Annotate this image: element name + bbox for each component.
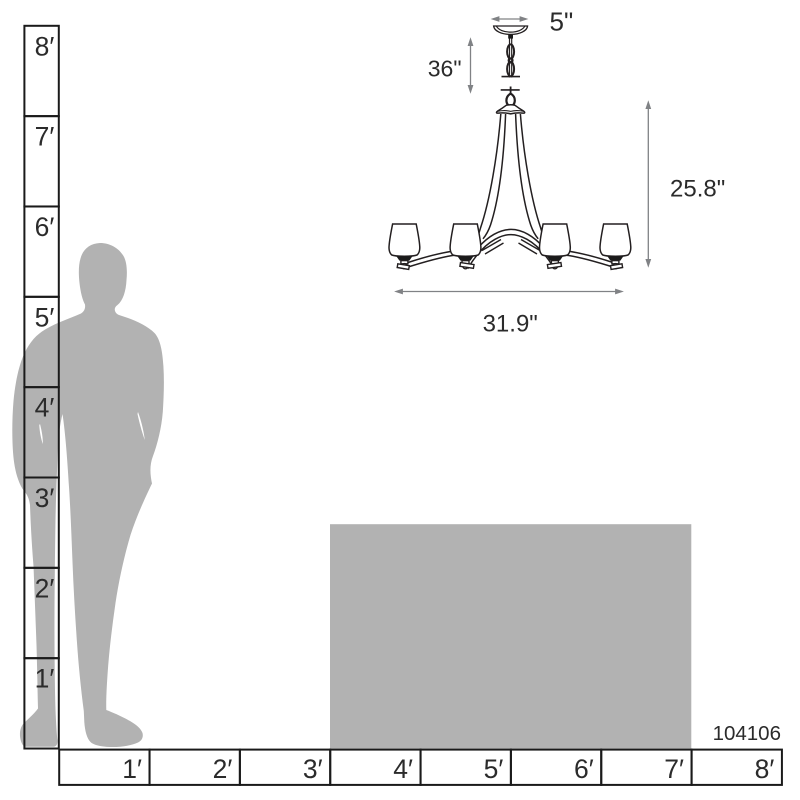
svg-text:36": 36" bbox=[428, 55, 462, 81]
svg-text:2′: 2′ bbox=[213, 754, 233, 784]
svg-text:8′: 8′ bbox=[755, 754, 775, 784]
svg-text:5′: 5′ bbox=[35, 302, 55, 332]
svg-text:1′: 1′ bbox=[35, 664, 55, 694]
svg-text:31.9": 31.9" bbox=[483, 311, 538, 338]
svg-text:5′: 5′ bbox=[484, 754, 504, 784]
svg-text:4′: 4′ bbox=[35, 393, 55, 423]
svg-text:1′: 1′ bbox=[122, 754, 142, 784]
svg-text:2′: 2′ bbox=[35, 573, 55, 603]
svg-text:6′: 6′ bbox=[574, 754, 594, 784]
svg-text:8′: 8′ bbox=[35, 31, 55, 61]
svg-text:4′: 4′ bbox=[393, 754, 413, 784]
svg-text:7′: 7′ bbox=[35, 122, 55, 152]
svg-text:3′: 3′ bbox=[35, 483, 55, 513]
svg-text:6′: 6′ bbox=[35, 212, 55, 242]
svg-text:104106: 104106 bbox=[713, 722, 781, 745]
svg-text:5": 5" bbox=[550, 6, 574, 36]
svg-text:25.8": 25.8" bbox=[670, 175, 725, 202]
svg-text:7′: 7′ bbox=[664, 754, 684, 784]
svg-text:3′: 3′ bbox=[303, 754, 323, 784]
